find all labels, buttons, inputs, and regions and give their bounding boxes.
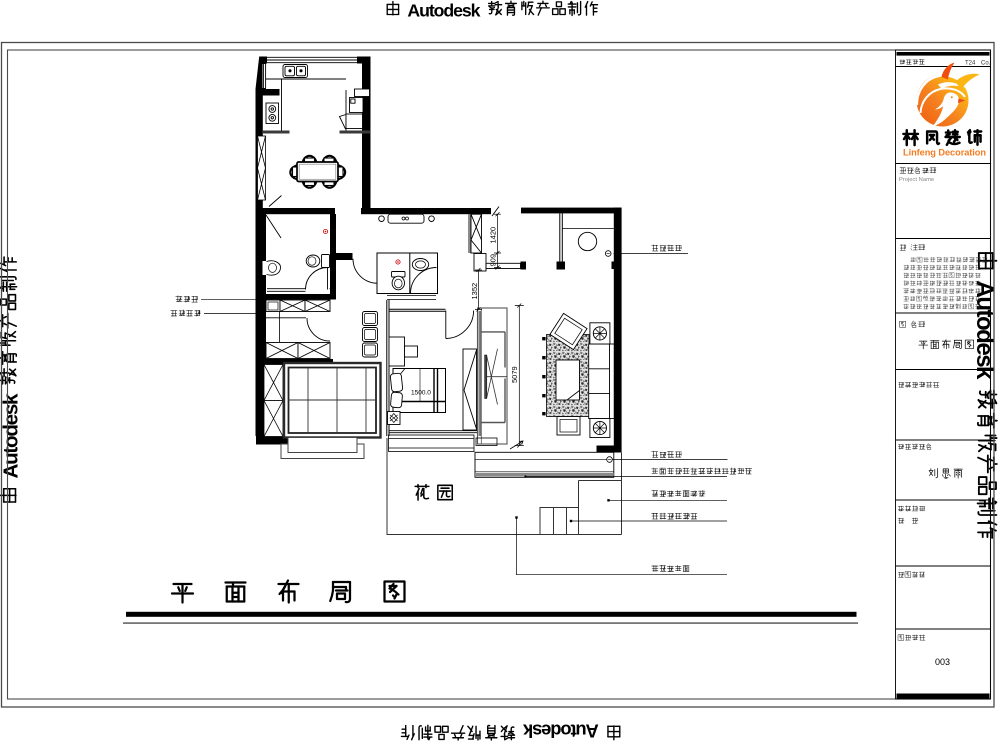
svg-text:Autodesk: Autodesk [522,720,599,741]
svg-text:5079: 5079 [510,366,519,383]
svg-text:1352: 1352 [470,283,479,300]
svg-text:Autodesk: Autodesk [0,393,22,479]
svg-text:1500.0: 1500.0 [411,390,431,397]
svg-text:Co.: Co. [981,61,991,67]
svg-text:Linfeng Decoration: Linfeng Decoration [903,148,986,158]
svg-text:Autodesk: Autodesk [407,0,480,20]
svg-text:909: 909 [489,254,498,267]
svg-text:1420: 1420 [489,227,498,244]
svg-text:Project Name: Project Name [899,177,934,183]
svg-text:T24: T24 [965,61,976,67]
svg-text:003: 003 [935,657,950,667]
